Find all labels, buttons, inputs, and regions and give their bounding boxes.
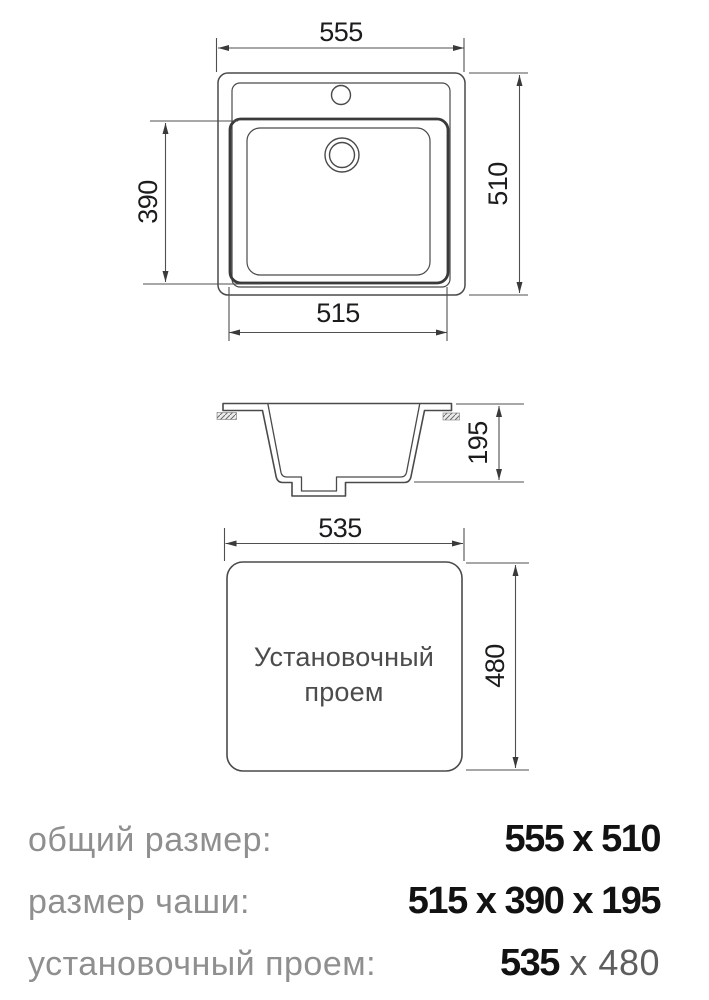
dim-text-overall-width: 555 <box>319 17 363 47</box>
top-view <box>218 73 465 295</box>
opening-view: Установочный проем <box>227 562 462 771</box>
dim-text-opening-height: 480 <box>480 644 510 688</box>
sink-diagram: 555 510 390 515 <box>0 0 709 810</box>
spec-value-sub: x 480 <box>559 942 660 983</box>
countertop-hatch-left <box>217 413 237 420</box>
spec-label-bowl-size: размер чаши: <box>28 883 250 922</box>
spec-value-opening-size: 535 x 480 <box>500 942 660 985</box>
spec-value-main: 555 x 510 <box>504 818 660 860</box>
spec-value-main: 515 x 390 x 195 <box>408 880 660 922</box>
spec-value-main: 535 <box>500 942 559 984</box>
spec-value-overall-size: 555 x 510 <box>504 818 660 861</box>
spec-row-bowl-size: размер чаши: 515 x 390 x 195 <box>28 880 660 942</box>
dim-text-bowl-depth: 390 <box>133 180 163 224</box>
dim-text-opening-width: 535 <box>318 513 362 543</box>
spec-value-bowl-size: 515 x 390 x 195 <box>408 880 660 923</box>
spec-list: общий размер: 555 x 510 размер чаши: 515… <box>28 818 660 1000</box>
sink-dimension-sheet: 555 510 390 515 <box>0 0 709 1000</box>
spec-row-opening-size: установочный проем: 535 x 480 <box>28 942 660 1000</box>
spec-row-overall-size: общий размер: 555 x 510 <box>28 818 660 880</box>
dim-text-overall-depth: 510 <box>483 162 513 206</box>
spec-label-opening-size: установочный проем: <box>28 945 376 984</box>
opening-label-line2: проем <box>304 677 383 707</box>
spec-label-overall-size: общий размер: <box>28 821 272 860</box>
opening-label-line1: Установочный <box>254 642 434 672</box>
dim-text-bowl-width: 515 <box>316 298 360 328</box>
countertop-hatch-right <box>443 413 460 420</box>
dim-text-bowl-height: 195 <box>463 421 493 465</box>
sink-outer-edge <box>218 73 465 295</box>
